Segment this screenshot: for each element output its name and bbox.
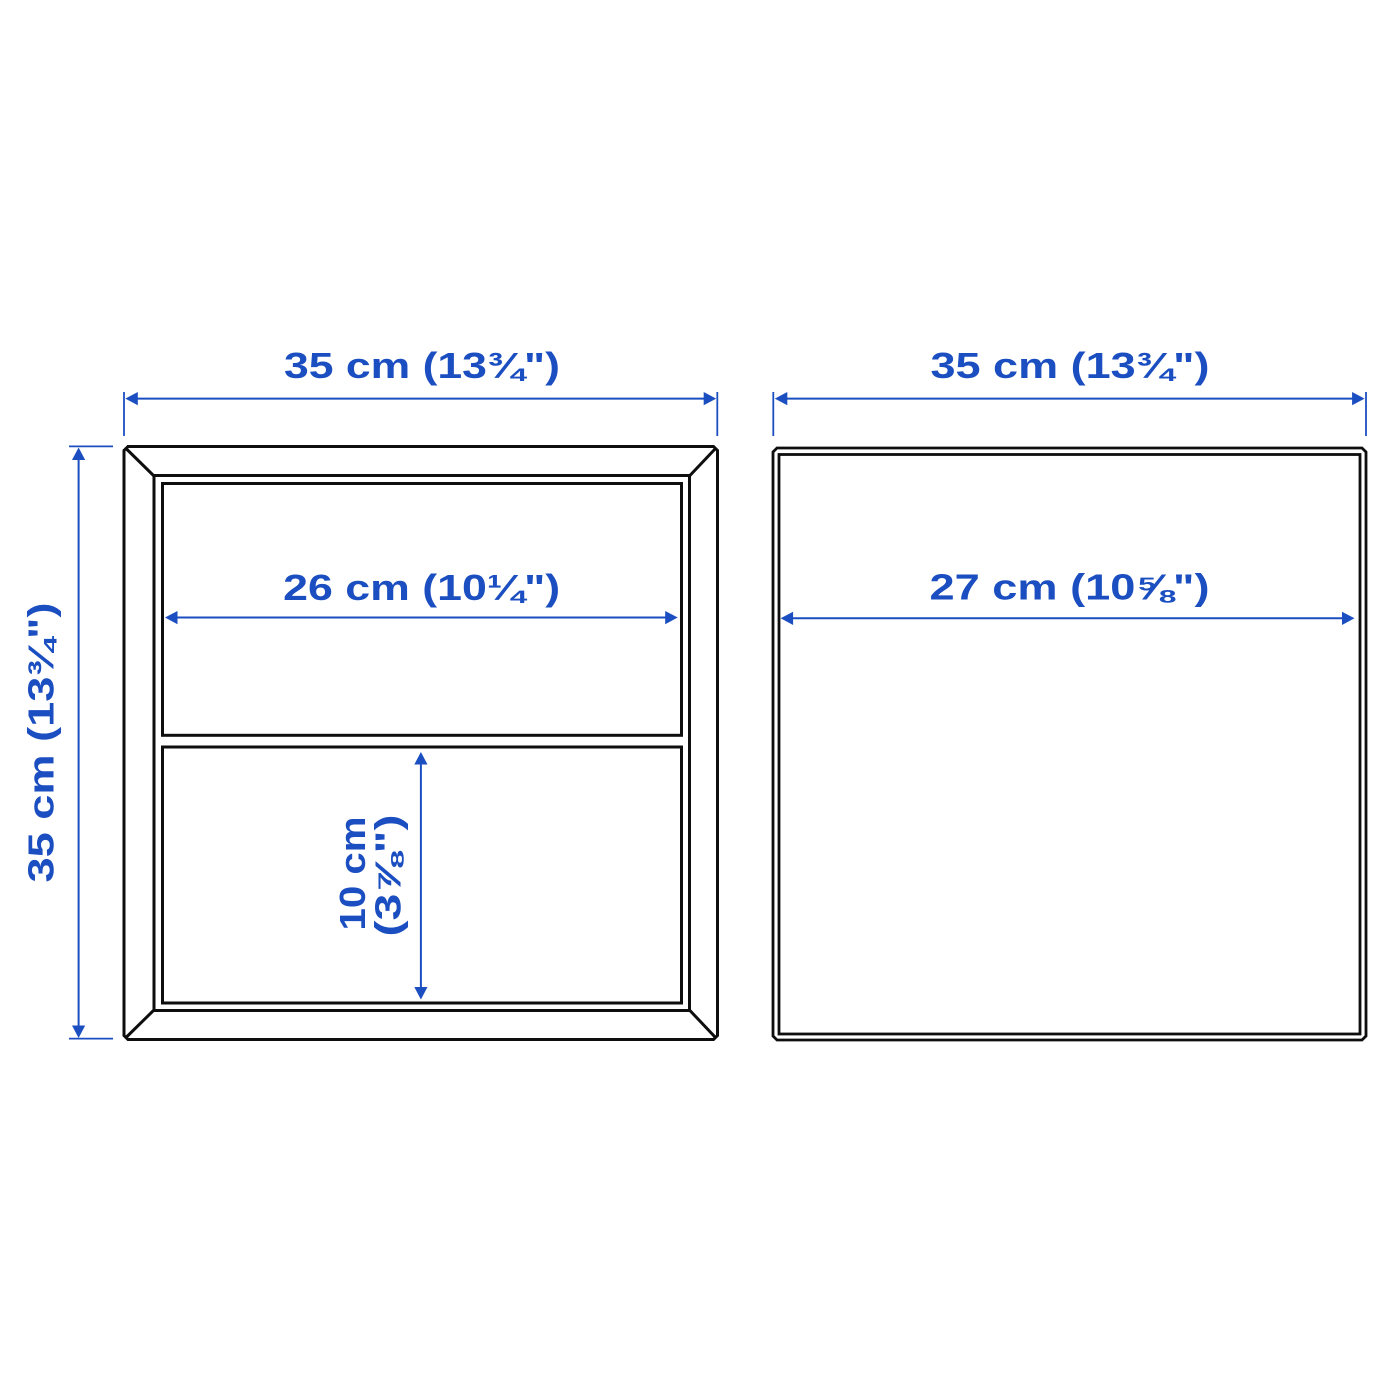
- svg-text:(3⅞"): (3⅞"): [368, 815, 409, 937]
- svg-text:27 cm (10⅝"): 27 cm (10⅝"): [930, 567, 1210, 608]
- svg-text:35 cm (13¾"): 35 cm (13¾"): [284, 345, 560, 386]
- svg-text:35 cm (13¾"): 35 cm (13¾"): [21, 603, 62, 883]
- svg-text:35 cm (13¾"): 35 cm (13¾"): [931, 345, 1210, 386]
- svg-text:26 cm (10¼"): 26 cm (10¼"): [283, 567, 560, 608]
